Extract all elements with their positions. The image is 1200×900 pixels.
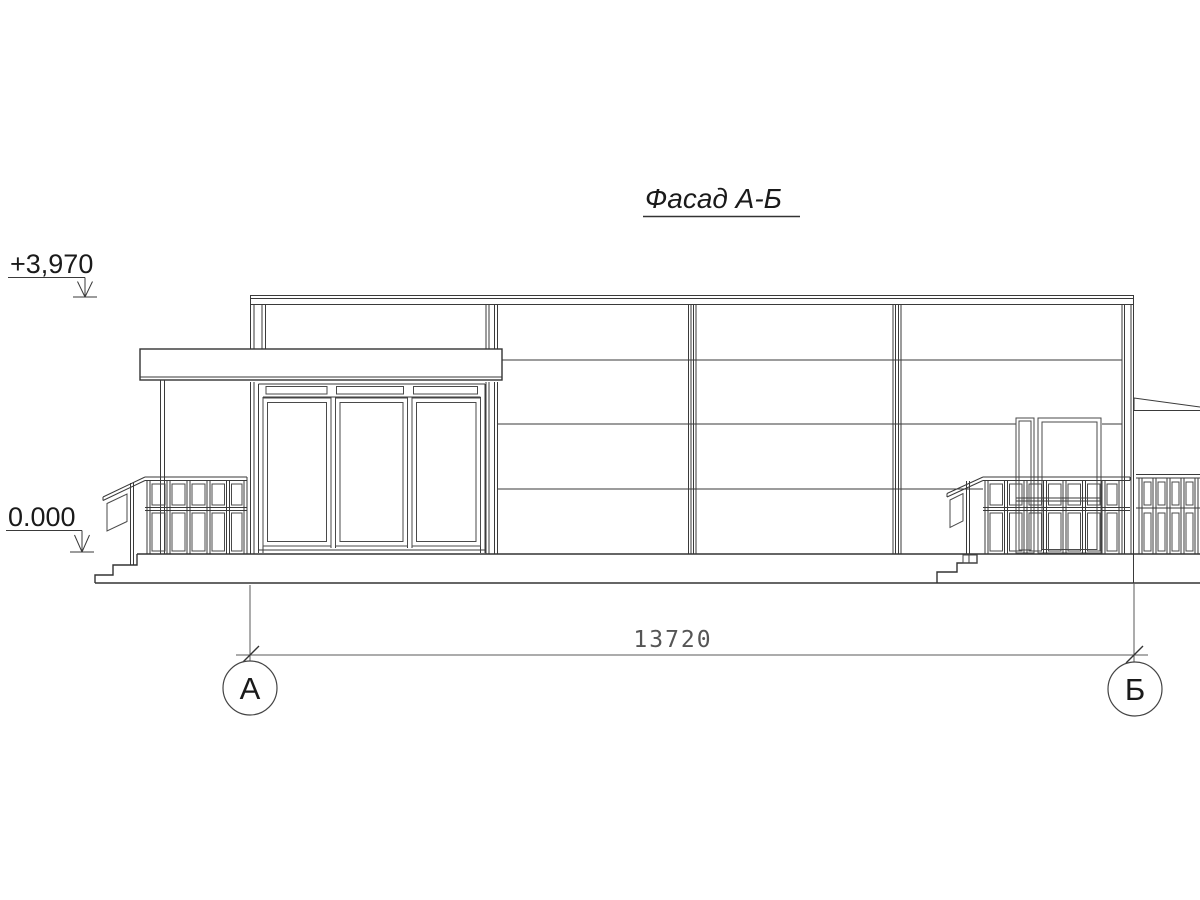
facade-siding-lines: [498, 360, 1122, 489]
elevation-mark-top: +3,970: [8, 249, 97, 297]
base-plinth: [95, 554, 1200, 583]
elevation-top-value: +3,970: [10, 249, 93, 279]
facade-drawing-canvas: 13720 А Б +3,970 0.000 Фасад А-Б: [0, 0, 1200, 900]
entrance-canopy: [140, 349, 502, 380]
drawing-title: Фасад А-Б: [643, 183, 800, 217]
axis-label-a: А: [240, 671, 261, 706]
dimension-value: 13720: [633, 627, 712, 653]
elevation-mark-zero: 0.000: [6, 502, 94, 552]
roof-parapet: [250, 296, 1134, 305]
elevation-zero-value: 0.000: [8, 502, 76, 532]
side-railing-beyond-building: [1136, 475, 1200, 555]
side-ramp-canopy: [1134, 398, 1200, 411]
axis-bubble-a: А: [223, 661, 277, 715]
drawing-title-text: Фасад А-Б: [645, 183, 782, 214]
left-porch-railing: [103, 477, 247, 565]
axis-bubble-b: Б: [1108, 662, 1162, 716]
storefront-glazing: [259, 384, 486, 553]
canopy-post: [161, 380, 165, 554]
dimension-line: 13720: [236, 583, 1148, 663]
axis-label-b: Б: [1125, 672, 1145, 707]
wall-columns: [251, 296, 1134, 584]
right-stairs: [937, 554, 977, 583]
